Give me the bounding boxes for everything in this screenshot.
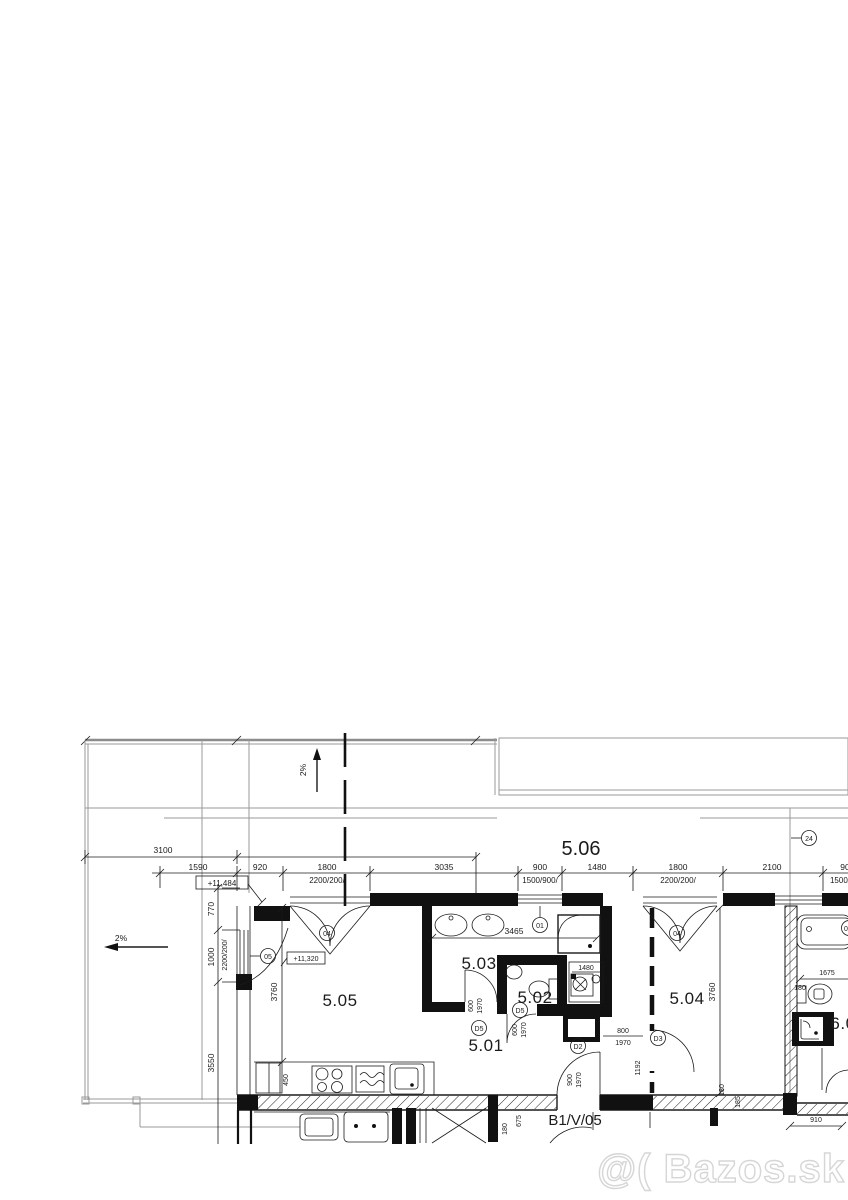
dim-d2-h: 1970 — [576, 1072, 583, 1088]
kitchen-counter — [254, 1062, 434, 1095]
dim-sub-2200-200-b: 2200/200/ — [660, 876, 696, 885]
washing-machine-icon — [571, 972, 600, 996]
dim-3550: 3550 — [206, 1053, 216, 1072]
section-and-slope: 2% 2% — [104, 733, 345, 951]
svg-text:0: 0 — [844, 926, 848, 933]
dim-sub-2200-200-a: 2200/200/ — [309, 876, 345, 885]
sink-icon — [472, 914, 504, 936]
dim-3760-a: 3760 — [269, 982, 279, 1001]
dim-180-right: 180 — [794, 985, 806, 992]
room-label-5-01: 5.01 — [468, 1036, 503, 1055]
kitchen-sink-icon — [390, 1064, 424, 1094]
dim-1590: 1590 — [189, 862, 208, 872]
svg-text:24: 24 — [805, 836, 813, 843]
dim-sub-1500-900: 1500/900/ — [522, 876, 558, 885]
svg-text:D3: D3 — [654, 1036, 663, 1043]
svg-text:05: 05 — [264, 954, 272, 961]
sink-icon — [435, 914, 467, 936]
room-labels: 5.05 5.03 5.02 5.01 5.04 5.06 6.0 B1/V/0… — [322, 838, 848, 1129]
dim-675: 675 — [516, 1115, 523, 1127]
dim-1480: 1480 — [588, 862, 607, 872]
dishwasher-icon — [356, 1066, 384, 1092]
shower-icon — [558, 915, 600, 953]
marker-door-d3: D3 — [651, 1031, 666, 1046]
dim-left-2200-200: 2200/200/ — [222, 939, 229, 970]
floorplan-drawing: 2% 2% 3100 1590 920 1800 3035 900 1480 1… — [0, 0, 848, 1200]
dim-1800-a: 1800 — [318, 862, 337, 872]
shaft-icon — [792, 1012, 834, 1046]
dim-d2-w: 900 — [567, 1074, 574, 1086]
dim-sub-1500-cut: 1500/ — [830, 876, 848, 885]
svg-text:04: 04 — [323, 931, 331, 938]
level-lower: +11,320 — [281, 952, 325, 966]
room-label-5-05: 5.05 — [322, 991, 357, 1010]
dim-180-b: 180 — [502, 1123, 509, 1135]
dim-door502-h: 1970 — [521, 1022, 528, 1038]
svg-text:D2: D2 — [574, 1044, 583, 1051]
dim-door502-w: 600 — [512, 1024, 519, 1036]
dim-1675: 1675 — [819, 970, 835, 977]
marker-window-01: 01 — [533, 906, 548, 933]
dim-3035: 3035 — [435, 862, 454, 872]
dim-3760-b: 3760 — [707, 982, 717, 1001]
unit-label-b1-v-05: B1/V/05 — [548, 1112, 601, 1129]
dimension-left-chain: 770 1000 2200/200/ 3550 — [206, 884, 240, 1144]
dim-door503-w: 600 — [468, 1000, 475, 1012]
bazos-watermark: @( Bazos.sk — [597, 1147, 845, 1191]
dim-d3-w: 800 — [617, 1028, 629, 1035]
dim-180-c: 180 — [719, 1084, 726, 1096]
dim-1000: 1000 — [206, 947, 216, 966]
dim-1192: 1192 — [635, 1060, 642, 1075]
slope-left-label: 2% — [115, 933, 128, 943]
room-label-5-04: 5.04 — [669, 989, 704, 1008]
dim-450: 450 — [283, 1074, 290, 1086]
dim-1800-b: 1800 — [669, 862, 688, 872]
slope-up-label: 2% — [298, 763, 308, 776]
svg-text:D5: D5 — [475, 1026, 484, 1033]
svg-text:01: 01 — [536, 923, 544, 930]
dim-900-cut: 90 — [840, 862, 848, 872]
room-label-5-02: 5.02 — [517, 988, 552, 1007]
dim-door503-h: 1970 — [477, 998, 484, 1014]
dim-910: 910 — [810, 1117, 822, 1124]
slope-left-arrowhead — [104, 943, 118, 951]
dim-3100: 3100 — [154, 845, 173, 855]
svg-text:04: 04 — [673, 931, 681, 938]
slope-up-arrowhead — [313, 748, 321, 760]
level-upper-label: +11,484 — [208, 879, 237, 888]
floorplan-page: 2% 2% 3100 1590 920 1800 3035 900 1480 1… — [0, 0, 848, 1200]
marker-door-d5-b: D5 — [472, 1021, 487, 1036]
level-lower-label: +11,320 — [294, 956, 319, 963]
dim-2100: 2100 — [763, 862, 782, 872]
neighbor-fixtures — [254, 1108, 426, 1144]
svg-text:D5: D5 — [516, 1008, 525, 1015]
dim-770: 770 — [206, 902, 216, 916]
room-label-5-03: 5.03 — [461, 954, 496, 973]
room-label-6-0: 6.0 — [830, 1014, 848, 1033]
dim-1480-niche: 1480 — [578, 965, 594, 972]
marker-section-24: 24 — [791, 831, 817, 846]
marker-edge-cut: 0 — [842, 921, 848, 936]
bathtub-icon — [797, 915, 848, 949]
dim-185: 185 — [735, 1096, 742, 1108]
room-label-5-06: 5.06 — [562, 838, 601, 860]
dim-900-a: 900 — [533, 862, 547, 872]
dim-920: 920 — [253, 862, 267, 872]
dim-d3-h: 1970 — [615, 1040, 631, 1047]
basin-icon — [506, 965, 522, 979]
dim-3465: 3465 — [505, 926, 524, 936]
